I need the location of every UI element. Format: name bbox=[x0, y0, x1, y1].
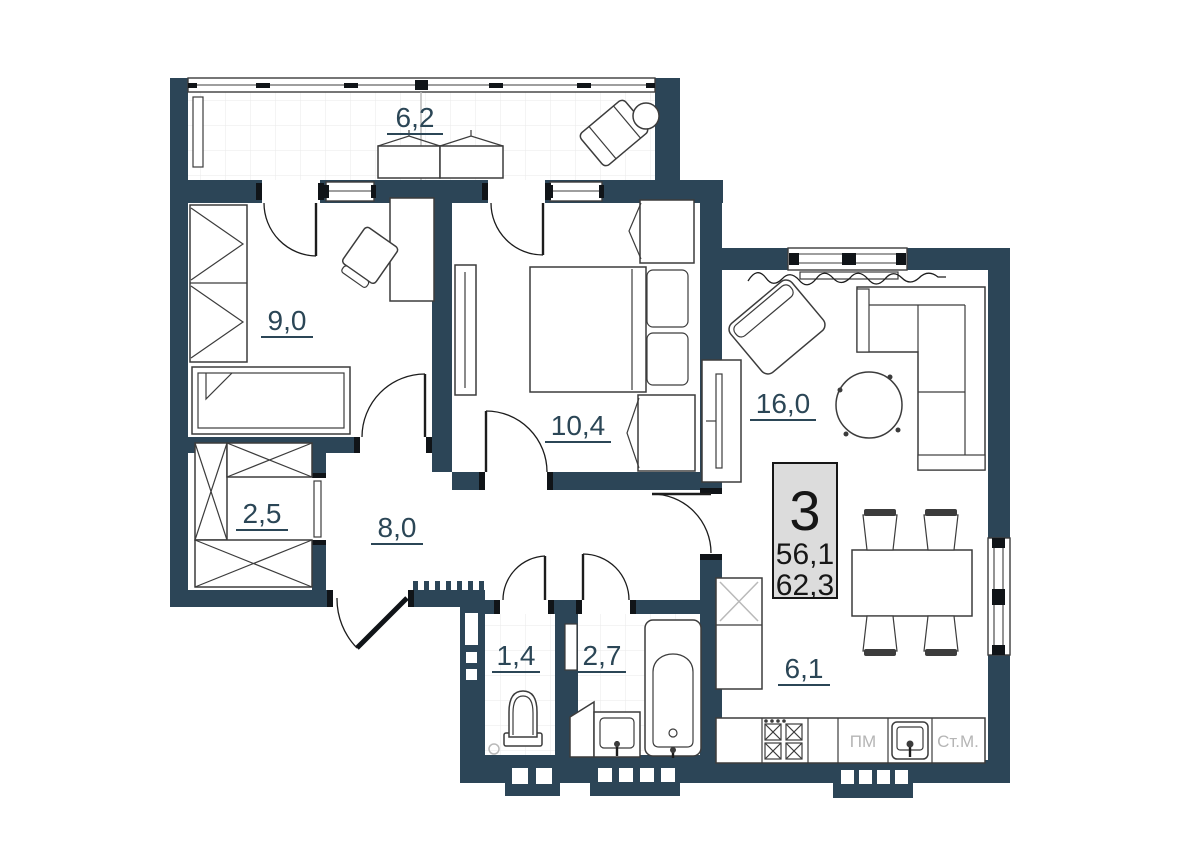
door-jamb bbox=[630, 600, 636, 614]
vent-slot bbox=[465, 613, 478, 645]
window-cap bbox=[371, 185, 376, 198]
door-jamb bbox=[700, 554, 722, 560]
shelf-unit bbox=[227, 443, 312, 477]
window-cap bbox=[992, 645, 1005, 655]
door-jamb bbox=[548, 600, 554, 614]
vent-slot bbox=[841, 770, 854, 784]
wall-mirror bbox=[565, 624, 577, 670]
wall-opening bbox=[500, 600, 548, 614]
sofa-armrest bbox=[918, 455, 985, 470]
window-cap bbox=[842, 253, 856, 265]
window-living bbox=[788, 248, 907, 279]
dishwasher-label: ПМ bbox=[850, 732, 876, 751]
dining-chair bbox=[924, 616, 958, 656]
window-cap bbox=[992, 538, 1005, 548]
storage-label: 2,5 bbox=[243, 498, 282, 529]
wall-opening bbox=[582, 600, 630, 614]
door-jamb bbox=[318, 183, 324, 200]
wall-segment bbox=[655, 78, 680, 182]
wall-segment bbox=[170, 78, 188, 607]
door-jamb bbox=[312, 540, 326, 545]
window-cap bbox=[789, 253, 799, 265]
fridge bbox=[716, 578, 762, 689]
window-cap bbox=[896, 253, 906, 265]
dining-table bbox=[852, 550, 972, 616]
kitchen-sink bbox=[892, 722, 928, 759]
window-cap bbox=[599, 185, 604, 198]
living-room-label: 16,0 bbox=[756, 388, 811, 419]
info-box: 3 56,1 62,3 bbox=[773, 463, 837, 602]
wall-opening bbox=[485, 472, 547, 490]
dining-chair bbox=[863, 616, 897, 656]
mirror-cabinet bbox=[455, 265, 476, 395]
wall-opening bbox=[262, 180, 320, 203]
tv-unit bbox=[702, 360, 741, 482]
glazing-mullion bbox=[188, 83, 197, 88]
vent-slot bbox=[619, 768, 633, 782]
washing-machine-label: Ст.М. bbox=[937, 732, 979, 751]
bedroom-large-label: 10,4 bbox=[551, 410, 606, 441]
dining-chair bbox=[863, 509, 897, 550]
window-bedroom-small bbox=[324, 182, 376, 201]
vent-slot bbox=[661, 768, 675, 782]
sofa-armrest bbox=[857, 289, 869, 352]
single-bed bbox=[192, 367, 350, 434]
glazing-mullion bbox=[646, 83, 655, 88]
pillow bbox=[647, 270, 688, 327]
vent-slot bbox=[598, 768, 612, 782]
wall-opening bbox=[333, 590, 408, 607]
door-jamb bbox=[576, 600, 582, 614]
wall-segment bbox=[988, 248, 1010, 783]
balcony-label: 6,2 bbox=[396, 102, 435, 133]
wall-segment bbox=[432, 203, 452, 472]
floor-plan: 3 56,1 62,3 6,2 9,0 10,4 16,0 2,5 8,0 1,… bbox=[0, 0, 1200, 848]
vent-slot bbox=[536, 768, 552, 784]
glazing-mullion bbox=[489, 83, 503, 88]
bathtub-icon bbox=[645, 620, 701, 758]
vent-slot bbox=[859, 770, 872, 784]
glazing-mullion bbox=[344, 83, 358, 88]
coffee-table bbox=[836, 372, 902, 438]
dining-chair bbox=[924, 509, 958, 550]
vent-slot bbox=[895, 770, 908, 784]
door-jamb bbox=[312, 473, 326, 478]
vent-slot bbox=[512, 768, 528, 784]
vent-slot bbox=[877, 770, 890, 784]
window-bedroom-large bbox=[548, 182, 604, 201]
door-jamb bbox=[547, 472, 553, 490]
storage-door-leaf bbox=[314, 481, 321, 537]
window-cap bbox=[992, 589, 1005, 605]
door-jamb bbox=[354, 437, 360, 453]
tv-icon bbox=[716, 374, 722, 468]
glazing-mullion bbox=[577, 83, 591, 88]
pillow bbox=[647, 333, 688, 385]
wall-segment bbox=[170, 590, 333, 607]
total-area: 62,3 bbox=[776, 569, 834, 602]
wc-label: 1,4 bbox=[497, 640, 536, 671]
kitchen-label: 6,1 bbox=[785, 653, 824, 684]
wall-opening bbox=[360, 437, 426, 453]
radiator bbox=[193, 97, 203, 167]
vent-slot bbox=[466, 669, 477, 680]
living-area: 56,1 bbox=[776, 538, 834, 571]
window-cap bbox=[324, 185, 329, 198]
shelf-unit bbox=[195, 443, 227, 540]
floor-plan-page: 3 56,1 62,3 6,2 9,0 10,4 16,0 2,5 8,0 1,… bbox=[0, 0, 1200, 848]
vent-slot bbox=[466, 652, 477, 663]
door-jamb bbox=[408, 590, 414, 607]
bathroom-label: 2,7 bbox=[583, 640, 622, 671]
balcony-side-table bbox=[633, 103, 659, 129]
hallway-label: 8,0 bbox=[378, 512, 417, 543]
radiator bbox=[800, 272, 898, 279]
rooms-count: 3 bbox=[789, 479, 820, 542]
bedroom-small-label: 9,0 bbox=[268, 305, 307, 336]
vent-slot bbox=[640, 768, 654, 782]
wall-opening bbox=[488, 180, 545, 203]
door-jamb bbox=[494, 600, 500, 614]
door-jamb bbox=[545, 183, 551, 200]
door-jamb bbox=[479, 472, 485, 490]
shelf-unit bbox=[195, 540, 312, 587]
door-jamb bbox=[426, 437, 432, 453]
door-jamb bbox=[327, 590, 333, 607]
door-jamb bbox=[256, 183, 262, 200]
window-kitchen bbox=[988, 538, 1010, 655]
wardrobe bbox=[190, 205, 247, 362]
glazing-mullion bbox=[415, 80, 428, 90]
door-jamb bbox=[482, 183, 488, 200]
glazing-mullion bbox=[256, 83, 270, 88]
